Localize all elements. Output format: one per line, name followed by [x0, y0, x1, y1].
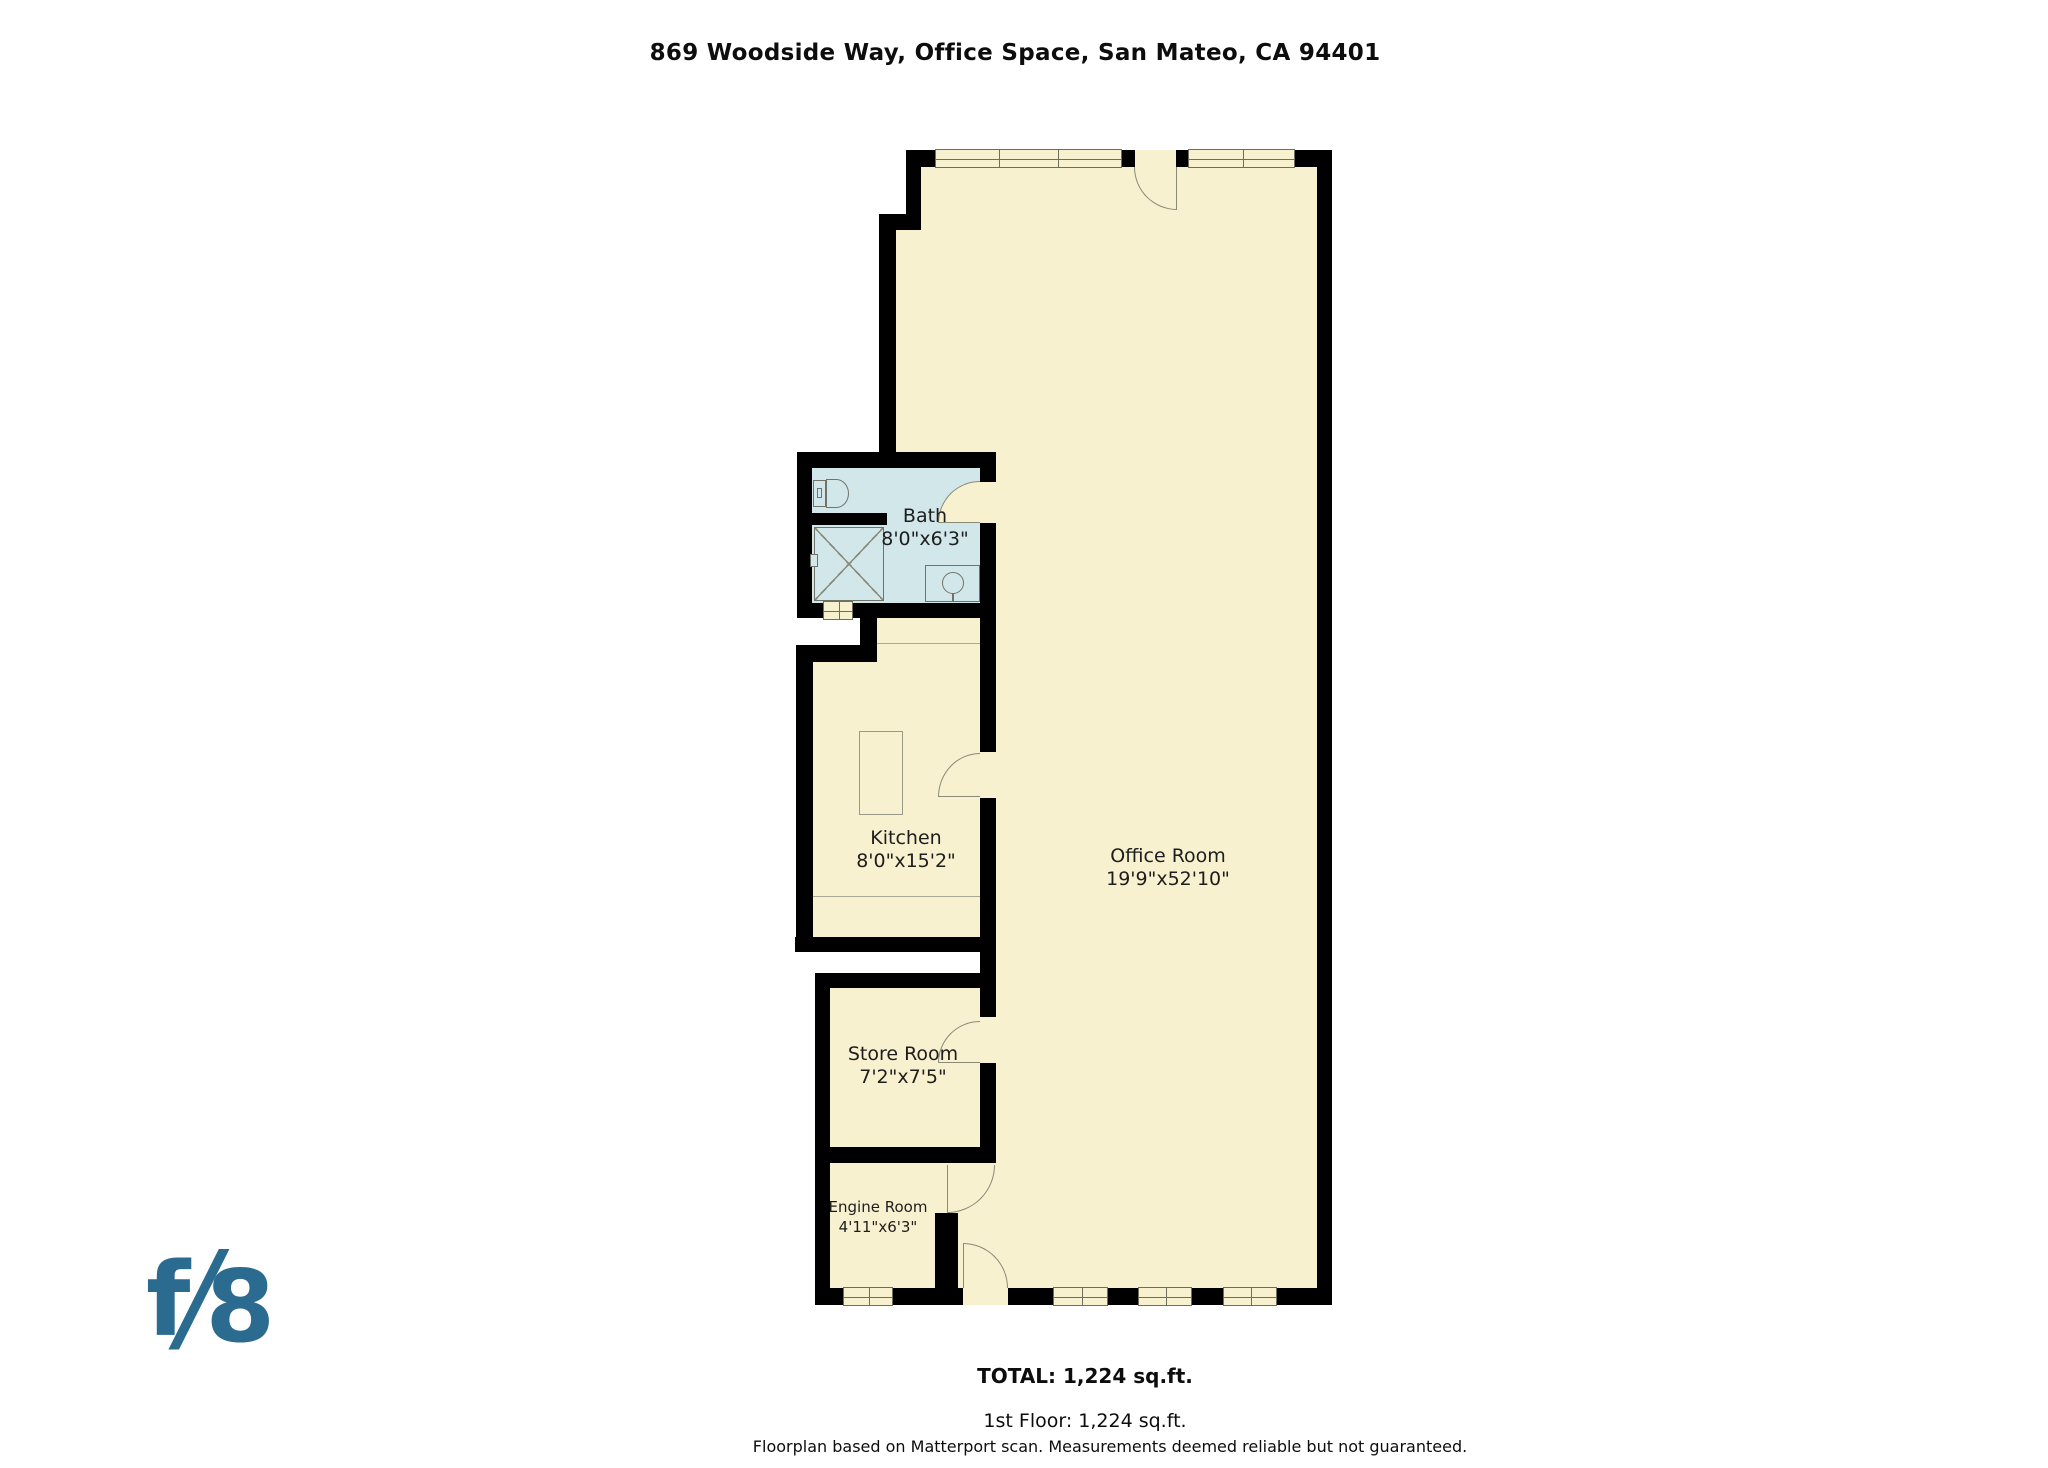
room-dims: 8'0"x6'3"	[881, 528, 969, 551]
store-door-opening	[980, 1017, 996, 1063]
room-name: Engine Room	[829, 1197, 928, 1217]
counter-edge-line	[813, 896, 980, 897]
wall-annex-right-2	[980, 523, 996, 752]
room-name: Store Room	[848, 1043, 958, 1066]
logo-digit-8: 8	[206, 1257, 276, 1357]
wall-annex-right-1	[980, 452, 996, 482]
exterior-gap	[795, 952, 980, 973]
bath-door-opening	[980, 482, 996, 523]
page-title: 869 Woodside Way, Office Space, San Mate…	[650, 40, 1381, 66]
total-area-text: TOTAL: 1,224 sq.ft.	[977, 1364, 1193, 1388]
f8-logo: f / 8	[146, 1246, 275, 1356]
window-divider	[999, 150, 1000, 167]
wall-annex-right-3	[980, 798, 996, 1017]
toilet-button	[817, 488, 822, 498]
wall-bath-left	[797, 452, 812, 618]
first-floor-area-text: 1st Floor: 1,224 sq.ft.	[983, 1410, 1186, 1432]
window	[1138, 1287, 1192, 1306]
sink-bowl-icon	[942, 572, 964, 594]
sink-tap-icon	[952, 593, 954, 602]
exterior-notch-mask	[893, 148, 906, 214]
room-label-store: Store Room 7'2"x7'5"	[848, 1043, 958, 1089]
room-name: Kitchen	[856, 827, 956, 850]
window	[1223, 1287, 1277, 1306]
wall-bath-top	[797, 452, 996, 468]
room-dims: 19'9"x52'10"	[1106, 868, 1230, 891]
wall-store-left	[815, 973, 830, 1163]
shower-icon	[814, 527, 884, 601]
kitchen-door-opening	[980, 752, 996, 798]
bottom-entry-opening	[963, 1288, 1008, 1305]
window	[1053, 1287, 1108, 1306]
wall-annex-right-4	[980, 1063, 996, 1147]
window	[1188, 149, 1295, 168]
wall-kitchen-left	[796, 645, 813, 952]
top-entry-opening	[1135, 150, 1176, 167]
window	[823, 601, 853, 620]
window-divider	[1251, 1288, 1252, 1305]
kitchen-nook-floor	[877, 618, 980, 660]
window	[935, 149, 1122, 168]
wall-kitchen-bottom	[795, 937, 996, 952]
room-label-engine: Engine Room 4'11"x6'3"	[829, 1197, 928, 1237]
window-divider	[1166, 1288, 1167, 1305]
disclaimer-text: Floorplan based on Matterport scan. Meas…	[753, 1437, 1467, 1456]
room-dims: 4'11"x6'3"	[829, 1217, 928, 1237]
wall-left-upper	[906, 150, 921, 216]
room-label-bath: Bath 8'0"x6'3"	[881, 505, 969, 551]
window-divider	[1082, 1288, 1083, 1305]
room-label-kitchen: Kitchen 8'0"x15'2"	[856, 827, 956, 873]
room-label-office: Office Room 19'9"x52'10"	[1106, 845, 1230, 891]
window-divider	[869, 1288, 870, 1305]
wall-left-mid	[879, 214, 896, 452]
counter-edge-line	[877, 643, 980, 644]
room-dims: 8'0"x15'2"	[856, 850, 956, 873]
wall-store-top	[815, 973, 996, 988]
room-name: Bath	[881, 505, 969, 528]
shower-valve-icon	[810, 554, 818, 567]
window-divider	[1058, 150, 1059, 167]
wall-bath-divider-stub	[812, 513, 887, 525]
kitchen-island	[859, 731, 903, 815]
window	[843, 1287, 893, 1306]
wall-right	[1317, 150, 1332, 1305]
wall-store-bottom	[815, 1147, 996, 1163]
room-name: Office Room	[1106, 845, 1230, 868]
room-dims: 7'2"x7'5"	[848, 1066, 958, 1089]
floorplan-page: 869 Woodside Way, Office Space, San Mate…	[0, 0, 2048, 1468]
window-divider	[1243, 150, 1244, 167]
window-divider	[839, 602, 840, 619]
wall-engine-right	[935, 1213, 958, 1288]
